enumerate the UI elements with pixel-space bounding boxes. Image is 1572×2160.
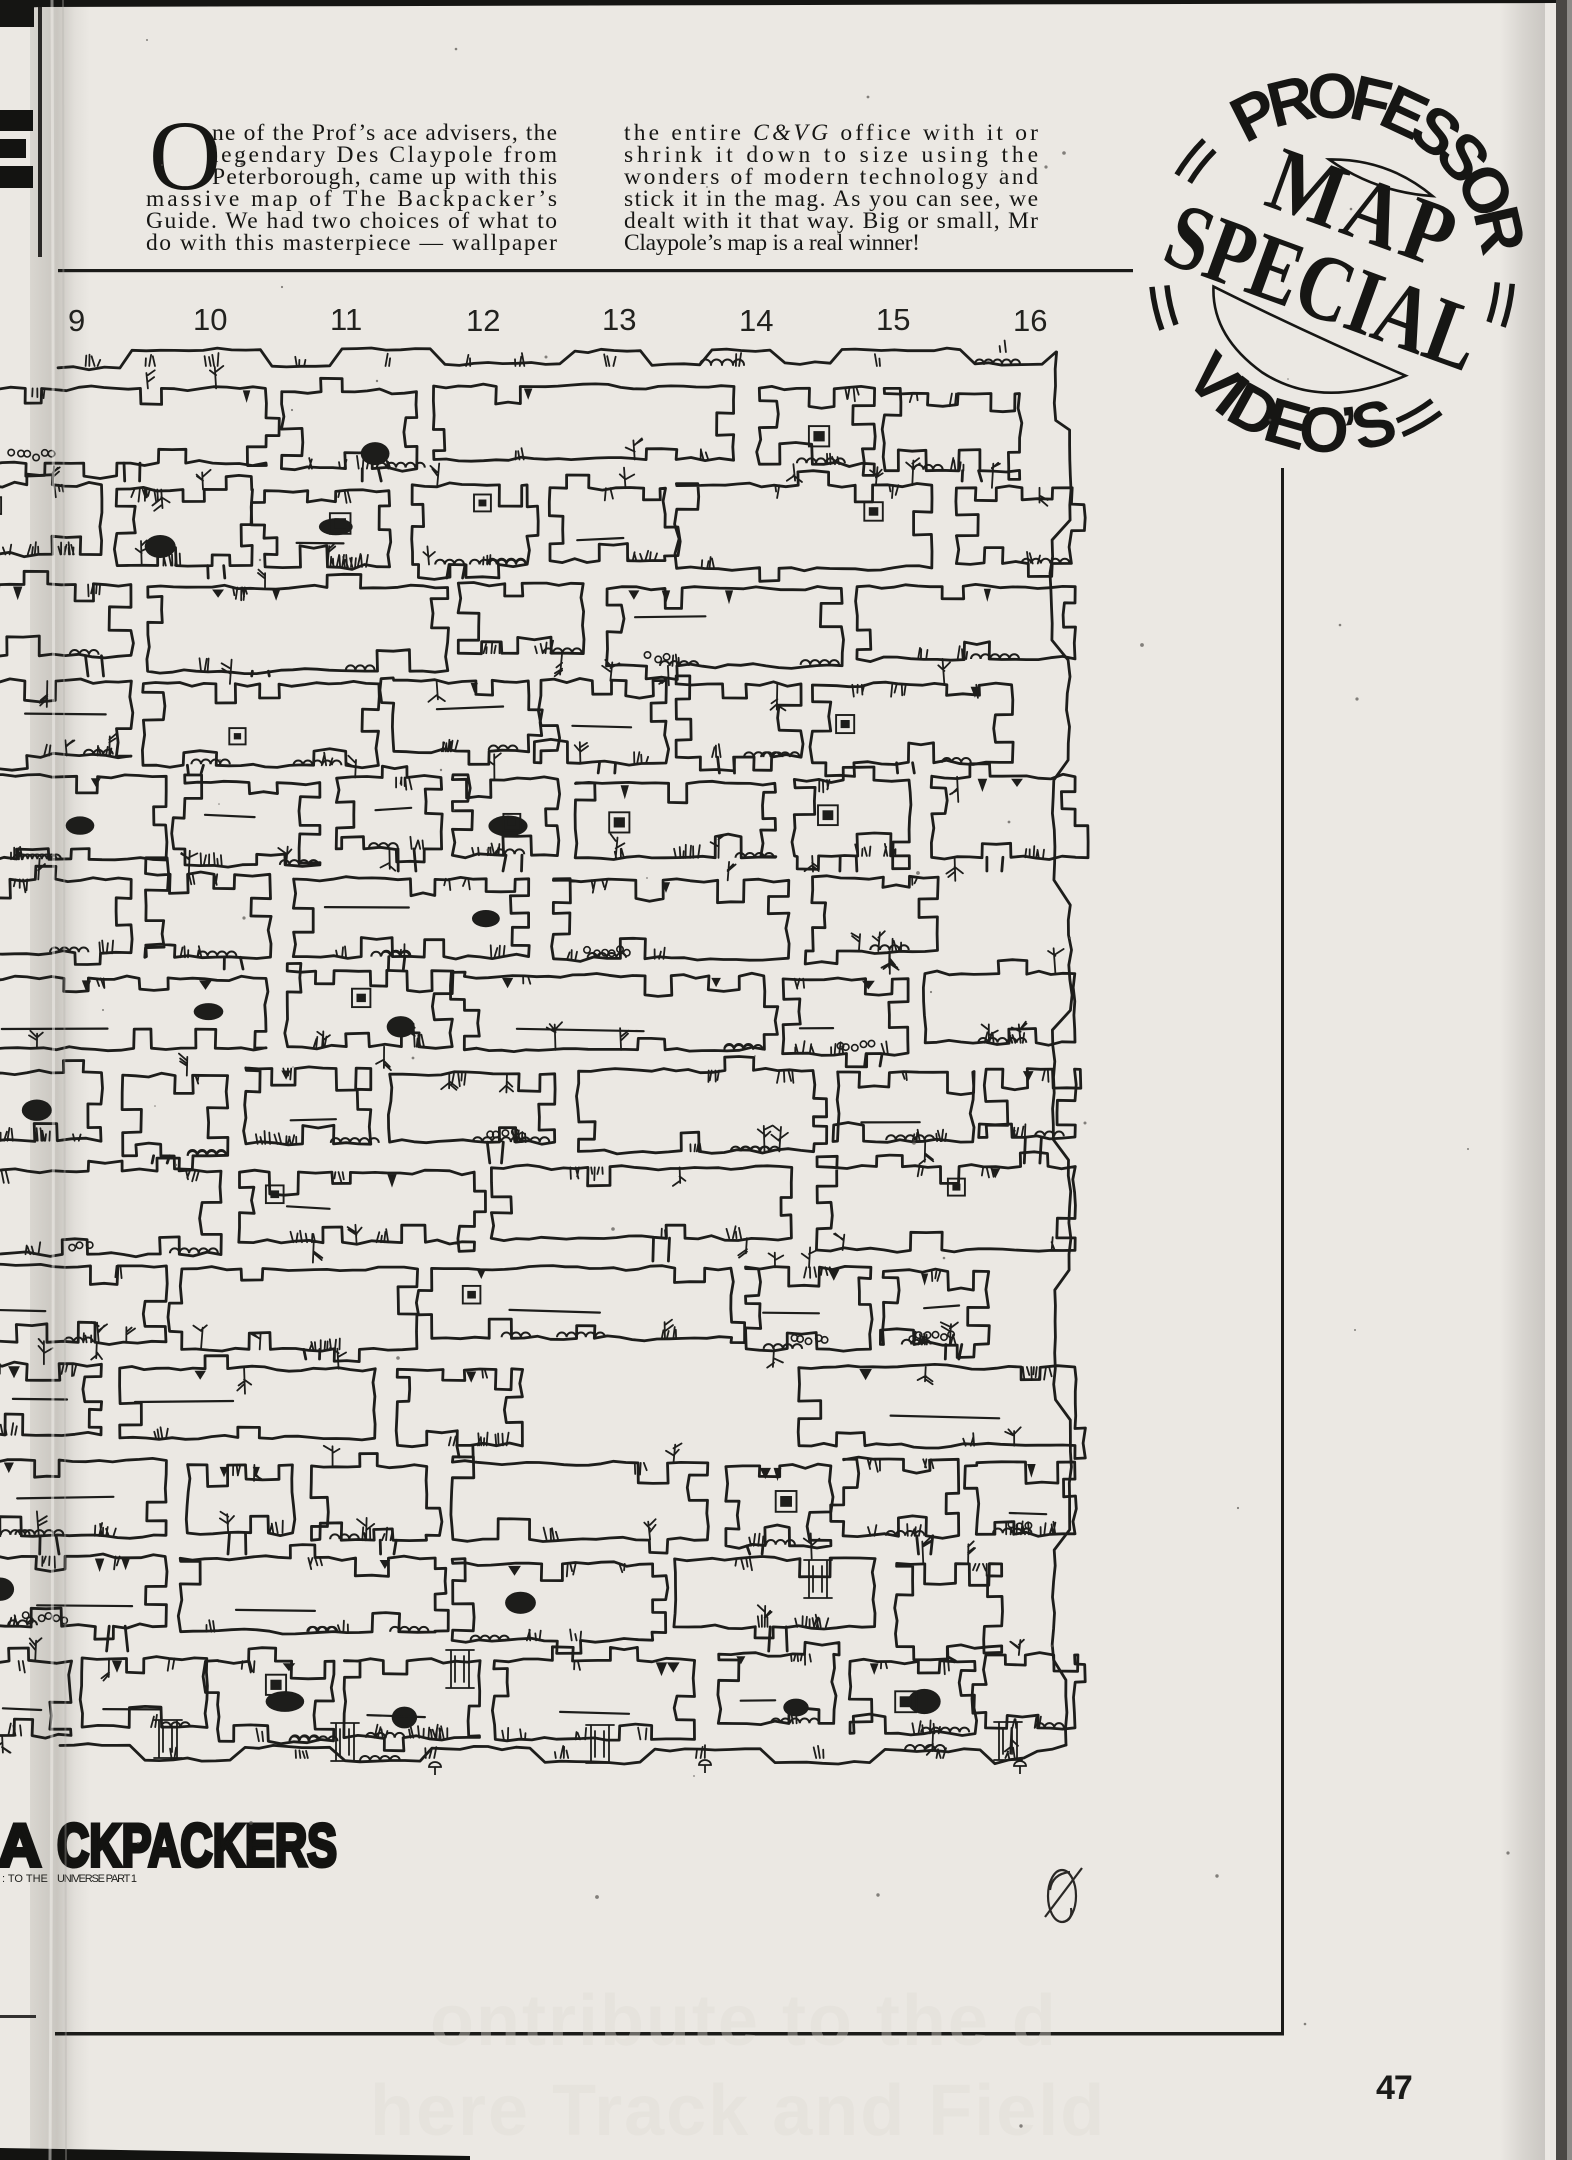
svg-text:Claypole’s map is a real winne: Claypole’s map is a real winner!: [624, 230, 920, 256]
svg-text:16: 16: [1013, 303, 1047, 338]
svg-text:A: A: [0, 1812, 41, 1879]
svg-text:15: 15: [876, 302, 910, 337]
svg-text:47: 47: [1376, 2069, 1412, 2107]
svg-text:14: 14: [739, 303, 773, 338]
svg-text:: TO THE: : TO THE: [2, 1873, 48, 1885]
svg-text:13: 13: [602, 302, 636, 337]
svg-text:do with this masterpiece — wal: do with this masterpiece — wallpaper: [146, 230, 557, 256]
svg-text:11: 11: [330, 302, 362, 337]
svg-text:10: 10: [193, 302, 227, 337]
svg-text:ontribute to the d: ontribute to the d: [430, 1981, 1058, 2061]
svg-text:here Track and Field: here Track and Field: [370, 2071, 1106, 2151]
svg-text:12: 12: [466, 303, 500, 338]
svg-text:9: 9: [68, 303, 85, 338]
svg-text:UNIVERSE PART 1: UNIVERSE PART 1: [57, 1873, 137, 1885]
svg-text:CKPACKERS: CKPACKERS: [57, 1812, 337, 1879]
